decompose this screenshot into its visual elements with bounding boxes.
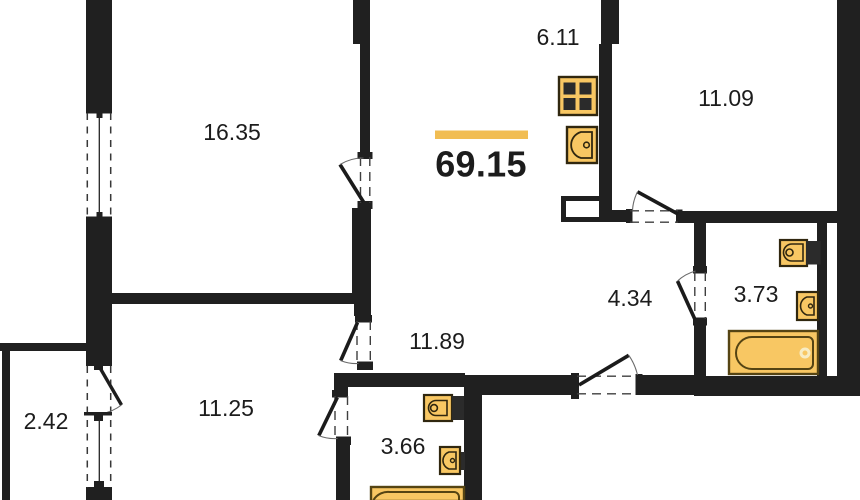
svg-text:11.89: 11.89 <box>409 328 465 354</box>
svg-text:11.25: 11.25 <box>198 395 254 421</box>
svg-text:3.73: 3.73 <box>734 281 779 307</box>
svg-text:6.11: 6.11 <box>536 24 579 50</box>
svg-text:69.15: 69.15 <box>435 144 527 185</box>
svg-text:3.66: 3.66 <box>381 433 426 459</box>
svg-text:4.34: 4.34 <box>608 285 653 311</box>
svg-text:2.42: 2.42 <box>24 408 69 434</box>
svg-text:11.09: 11.09 <box>698 85 754 111</box>
svg-text:16.35: 16.35 <box>203 119 261 145</box>
